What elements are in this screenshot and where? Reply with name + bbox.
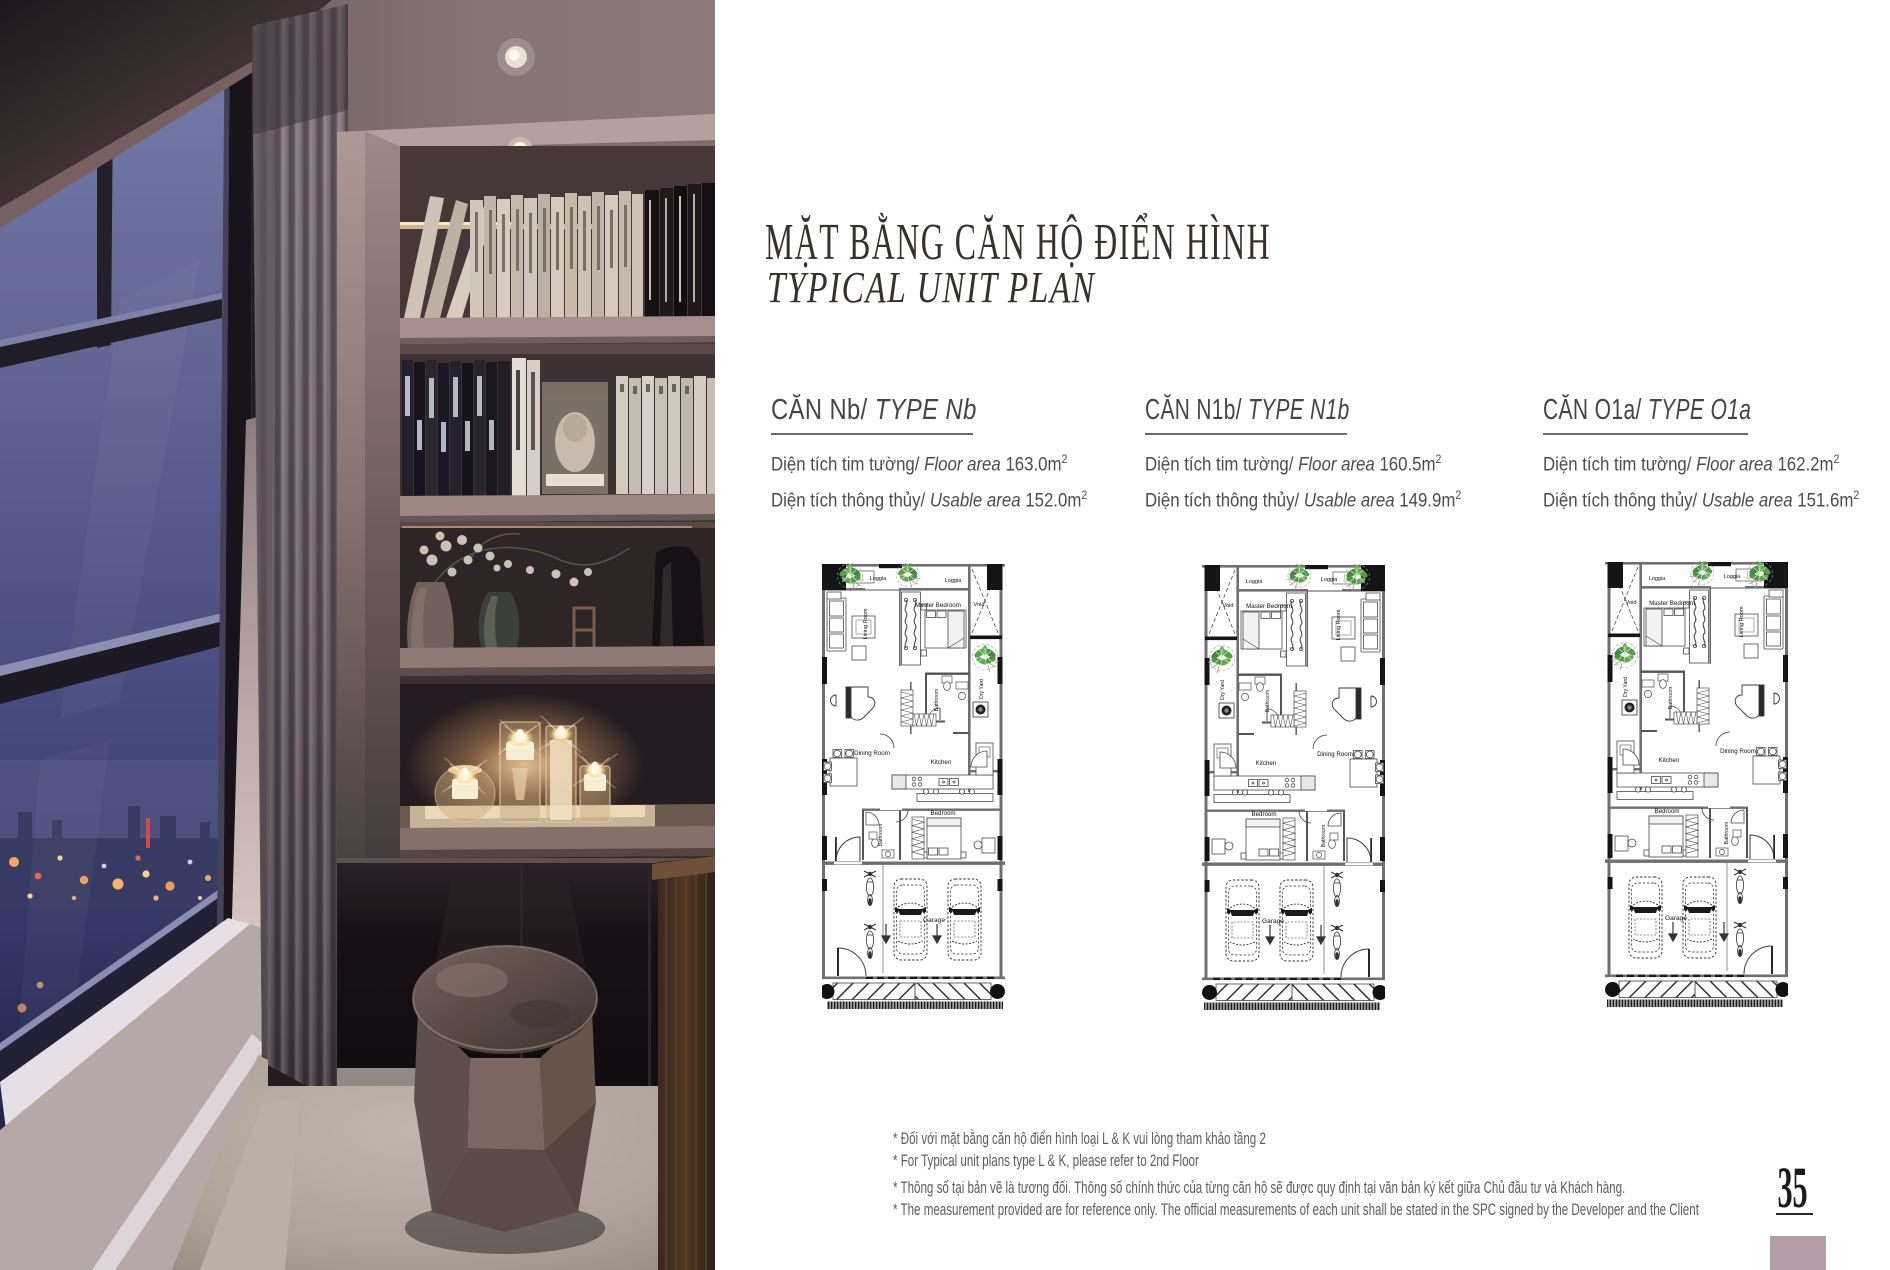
svg-text:Bedroom: Bedroom (1654, 808, 1679, 815)
svg-text:Bedroom: Bedroom (1251, 811, 1276, 818)
svg-text:Bathroom: Bathroom (1668, 687, 1674, 710)
svg-text:Bathroom: Bathroom (1321, 825, 1327, 848)
svg-text:Kitchen: Kitchen (931, 759, 952, 766)
svg-text:Loggia: Loggia (1649, 576, 1667, 582)
svg-text:Loggia: Loggia (870, 576, 888, 582)
svg-text:Master Bedroom: Master Bedroom (915, 602, 961, 609)
svg-text:Bathroom: Bathroom (1265, 690, 1271, 713)
svg-text:Garage: Garage (1665, 915, 1687, 922)
svg-text:Garage: Garage (923, 917, 945, 924)
svg-text:Loggia: Loggia (1321, 577, 1339, 583)
svg-text:Bedroom: Bedroom (930, 810, 955, 817)
svg-text:Garage: Garage (1262, 918, 1284, 925)
svg-text:Bathroom: Bathroom (878, 824, 884, 847)
svg-text:Kitchen: Kitchen (1659, 757, 1680, 764)
svg-text:Kitchen: Kitchen (1256, 760, 1277, 767)
svg-text:Living Room: Living Room (1739, 606, 1745, 637)
svg-text:Void: Void (974, 602, 985, 608)
svg-text:Void: Void (1223, 603, 1234, 609)
svg-text:Bathroom: Bathroom (934, 689, 940, 712)
svg-text:Dining Room: Dining Room (854, 750, 890, 757)
svg-text:Master Bedroom: Master Bedroom (1649, 600, 1695, 607)
svg-text:Loggia: Loggia (1246, 579, 1264, 585)
svg-text:Living Room: Living Room (863, 608, 869, 639)
svg-text:Dry Yard: Dry Yard (1220, 680, 1226, 700)
svg-text:Dry Yard: Dry Yard (1623, 677, 1629, 697)
svg-text:Master Bedroom: Master Bedroom (1246, 603, 1292, 610)
svg-text:Void: Void (1626, 600, 1637, 606)
svg-text:Dining Room: Dining Room (1317, 751, 1353, 758)
svg-text:Bathroom: Bathroom (1724, 822, 1730, 845)
svg-text:Loggia: Loggia (945, 578, 963, 584)
svg-text:Loggia: Loggia (1724, 574, 1742, 580)
svg-text:Dining Room: Dining Room (1720, 748, 1756, 755)
svg-text:Dry Yard: Dry Yard (979, 679, 985, 699)
svg-text:Living Room: Living Room (1336, 609, 1342, 640)
